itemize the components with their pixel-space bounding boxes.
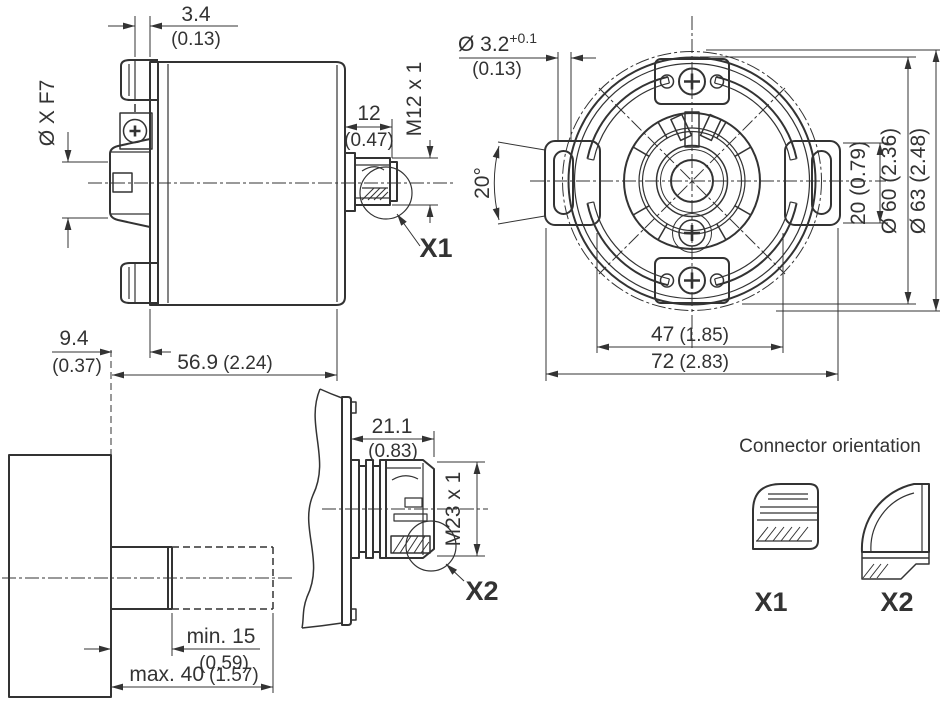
front-centerlines bbox=[530, 16, 886, 348]
connector-orientation-title: Connector orientation bbox=[739, 436, 921, 457]
orientation-x2-inner bbox=[871, 484, 922, 552]
dim-9-4-in: (0.37) bbox=[52, 356, 102, 377]
orientation-x2-hatch bbox=[863, 564, 888, 578]
dim-dia63-label: Ø 63 (2.48) bbox=[907, 128, 930, 234]
dim-3-4-in: (0.13) bbox=[171, 29, 221, 50]
label-x2: X2 bbox=[465, 576, 498, 606]
front-angle-lines bbox=[498, 142, 545, 224]
x2-leader bbox=[446, 564, 464, 581]
dim-slot-length-label: 20 (0.79) bbox=[847, 141, 870, 225]
side-x1-leader bbox=[397, 214, 420, 246]
x2-face-tab-top bbox=[351, 402, 356, 413]
dim-m12-label: M12 x 1 bbox=[403, 62, 426, 137]
dim-21-1-mm: 21.1 bbox=[372, 415, 413, 438]
front-view: Ø 3.2+0.1 (0.13) 20° 20 (0.79) Ø 60 (2.3… bbox=[458, 16, 940, 381]
dim-47-label: 47(1.85) bbox=[651, 323, 729, 346]
x2-key-bar bbox=[394, 514, 427, 521]
side-body-outline bbox=[150, 62, 345, 305]
dim-21-1-in: (0.83) bbox=[368, 441, 418, 462]
orientation-x1-thumbnail bbox=[753, 484, 818, 549]
side-screw-cross-icon bbox=[130, 126, 141, 137]
x2-rear-face-strip bbox=[342, 397, 351, 625]
shaft-view: min. 15 (0.59) max. 40(1.57) bbox=[2, 455, 292, 697]
drawing-page: 3.4 (0.13) Ø X F7 12 (0.47) M12 x 1 X1 9… bbox=[0, 0, 940, 702]
encoder-technical-drawing: 3.4 (0.13) Ø X F7 12 (0.47) M12 x 1 X1 9… bbox=[0, 0, 940, 702]
dim-dia60-label: Ø 60 (2.36) bbox=[878, 128, 901, 234]
dim-max40-label: max. 40(1.57) bbox=[129, 663, 258, 686]
connector-orientation: Connector orientation X1 X2 bbox=[739, 436, 929, 617]
x2-key-block bbox=[391, 536, 430, 553]
dim-72-label: 72(2.83) bbox=[651, 350, 729, 373]
x2-view: 21.1 (0.83) M23 x 1 X2 bbox=[302, 389, 499, 628]
dim-slot-width: Ø 3.2+0.1 bbox=[458, 30, 537, 56]
dim-9-4-mm: 9.4 bbox=[59, 327, 89, 350]
side-connector-x1-outline bbox=[345, 153, 397, 211]
dim-12-mm: 12 bbox=[357, 102, 380, 125]
dim-min15-mm: min. 15 bbox=[187, 625, 256, 648]
dim-3-4-mm: 3.4 bbox=[181, 3, 211, 26]
dim-slot-width-in: (0.13) bbox=[472, 59, 522, 80]
label-x1: X1 bbox=[419, 233, 452, 263]
orientation-x2-outline bbox=[862, 484, 929, 552]
dim-m23-label: M23 x 1 bbox=[442, 472, 465, 547]
orientation-x1-label: X1 bbox=[754, 587, 787, 617]
dim-56-9: 56.9(2.24) bbox=[177, 351, 273, 374]
side-x1-detail-circle bbox=[360, 167, 412, 219]
x2-face-tab-bottom bbox=[351, 609, 356, 620]
side-view: 3.4 (0.13) Ø X F7 12 (0.47) M12 x 1 X1 9… bbox=[36, 3, 456, 455]
orientation-x2-thumbnail bbox=[862, 484, 929, 579]
side-clamp-top bbox=[121, 60, 158, 100]
shaft-block bbox=[9, 455, 111, 697]
orientation-x1-hatch bbox=[757, 527, 808, 541]
front-hub-slot-left bbox=[671, 114, 692, 140]
dim-12-in: (0.47) bbox=[344, 130, 394, 151]
dim-bore-label: Ø X F7 bbox=[36, 80, 59, 147]
front-angle-arc bbox=[494, 146, 499, 220]
dim-angle-label: 20° bbox=[471, 167, 494, 199]
side-clamp-bottom bbox=[121, 263, 158, 303]
orientation-x2-label: X2 bbox=[880, 587, 913, 617]
x2-keyway-slot bbox=[405, 498, 422, 507]
